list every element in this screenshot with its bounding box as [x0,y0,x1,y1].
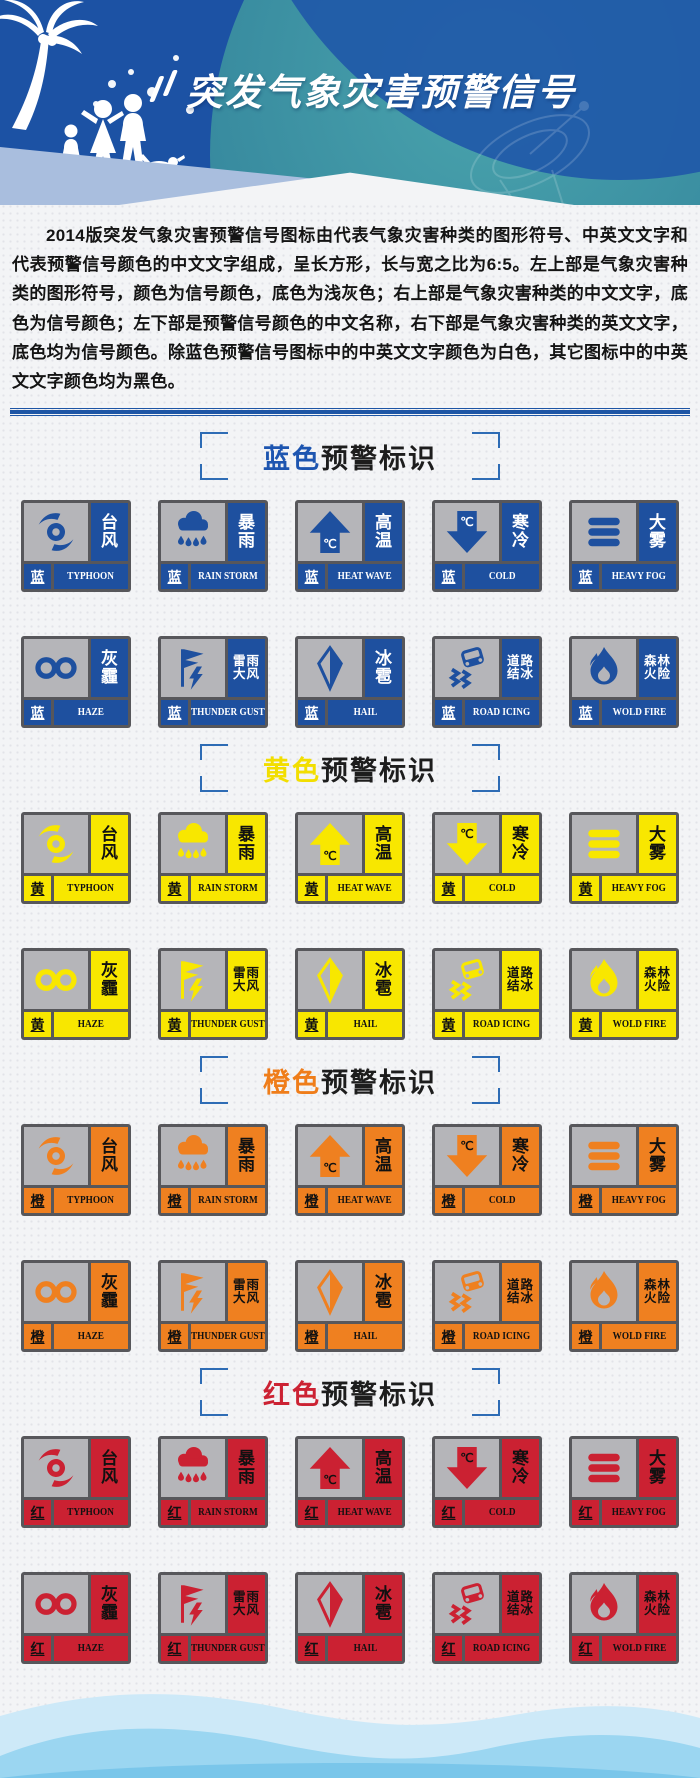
card-yellow-roadicing: 道路结冰 黄 ROAD ICING [432,948,542,1040]
heatwave-icon: ℃ [306,820,354,868]
zh-name: 寒冷 [502,503,539,561]
card-bottom-row: 蓝 RAIN STORM [161,564,265,589]
badge: 黄 [298,876,325,901]
en-name-cell: COLD [465,876,539,901]
heatwave-icon: ℃ [306,508,354,556]
card-top-row: 雷雨大风 [161,951,265,1009]
footer-waves [0,1682,700,1778]
heatwave-icon: ℃ [306,1132,354,1180]
zh-name-line: 大风 [233,668,260,682]
card-top-row: 道路结冰 [435,1263,539,1321]
zh-name: 大雾 [639,1127,676,1185]
badge: 蓝 [298,700,325,725]
icon-host [298,1263,362,1321]
zh-name-line: 结冰 [507,1292,534,1306]
zh-name: 台风 [91,1127,128,1185]
zh-name-line: 火险 [644,1604,671,1618]
section-title-color-word: 蓝色 [263,437,321,476]
card-top-row: 森林火险 [572,639,676,697]
card-orange-roadicing: 道路结冰 橙 ROAD ICING [432,1260,542,1352]
zh-name-line: 雾 [649,844,666,862]
warning-section-orange: 橙色预警标识 台风 橙 TYPHOON 暴雨 橙 RAIN STORM [0,1056,700,1352]
card-orange-rainstorm: 暴雨 橙 RAIN STORM [158,1124,268,1216]
icon-host [24,503,88,561]
section-title-rest: 预警标识 [321,1373,437,1412]
zh-name: 高温 [365,503,402,561]
zh-name-line: 灰 [101,962,118,980]
card-bottom-row: 黄 HAIL [298,1012,402,1037]
en-name: RAIN STORM [198,883,258,894]
section-title: 黄色预警标识 [200,744,500,792]
bracket-corner-icon [472,1368,500,1384]
bracket-corner-icon [472,464,500,480]
zh-name-line: 风 [101,844,118,862]
zh-name-line: 冷 [512,532,529,550]
zh-name: 雷雨大风 [228,1575,265,1633]
card-bottom-row: 橙 RAIN STORM [161,1188,265,1213]
en-name-cell: TYPHOON [54,876,128,901]
bracket-corner-icon [200,464,228,480]
zh-name-line: 冷 [512,1156,529,1174]
zh-name: 森林火险 [639,1575,676,1633]
zh-name-line: 台 [101,826,118,844]
icon-host: ℃ [298,1127,362,1185]
zh-name-line: 雨 [238,532,255,550]
badge: 蓝 [435,564,462,589]
card-bottom-row: 橙 HEAVY FOG [572,1188,676,1213]
card-top-row: 灰霾 [24,1575,128,1633]
wave-graphic [0,1682,700,1778]
icon-host [572,815,636,873]
heavyfog-icon [580,1132,628,1180]
card-red-haze: 灰霾 红 HAZE [21,1572,131,1664]
card-blue-wildfire: 森林火险 蓝 WOLD FIRE [569,636,679,728]
badge: 黄 [572,1012,599,1037]
icon-host [24,639,88,697]
card-bottom-row: 蓝 HAZE [24,700,128,725]
zh-name-line: 大风 [233,980,260,994]
rainstorm-icon [169,1132,217,1180]
icon-host [572,1263,636,1321]
section-title-color-word: 橙色 [263,1061,321,1100]
card-top-row: 冰雹 [298,951,402,1009]
zh-name: 大雾 [639,815,676,873]
card-bottom-row: 红 WOLD FIRE [572,1636,676,1661]
zh-name: 雷雨大风 [228,639,265,697]
icon-host: ℃ [435,1439,499,1497]
card-top-row: ℃ 寒冷 [435,503,539,561]
card-bottom-row: 蓝 HEAVY FOG [572,564,676,589]
card-top-row: 冰雹 [298,639,402,697]
zh-name-line: 风 [101,1156,118,1174]
card-orange-cold: ℃ 寒冷 橙 COLD [432,1124,542,1216]
roadicing-icon [443,1268,491,1316]
card-bottom-row: 红 COLD [435,1500,539,1525]
card-blue-hail: 冰雹 蓝 HAIL [295,636,405,728]
card-red-typhoon: 台风 红 TYPHOON [21,1436,131,1528]
zh-name-line: 暴 [238,1138,255,1156]
zh-name-line: 雾 [649,532,666,550]
card-red-thundergust: 雷雨大风 红 THUNDER GUST [158,1572,268,1664]
thundergust-icon [169,1268,217,1316]
en-name: HAIL [353,1019,377,1030]
card-top-row: 灰霾 [24,639,128,697]
en-name: TYPHOON [68,1195,115,1206]
card-yellow-hail: 冰雹 黄 HAIL [295,948,405,1040]
icon-host: ℃ [298,1439,362,1497]
en-name: WOLD FIRE [612,707,666,718]
zh-name-line: 雹 [375,668,392,686]
en-name: HEAT WAVE [338,883,392,894]
en-name-cell: HEAT WAVE [328,564,402,589]
zh-name-line: 寒 [512,514,529,532]
svg-text:℃: ℃ [323,537,336,551]
zh-name-line: 霾 [101,668,118,686]
card-bottom-row: 红 HAZE [24,1636,128,1661]
zh-name-line: 雹 [375,1604,392,1622]
en-name: THUNDER GUST [191,707,265,718]
zh-name-line: 霾 [101,1604,118,1622]
card-blue-thundergust: 雷雨大风 蓝 THUNDER GUST [158,636,268,728]
icon-host [572,951,636,1009]
zh-name-line: 暴 [238,1450,255,1468]
card-top-row: 大雾 [572,503,676,561]
card-bottom-row: 红 HEAVY FOG [572,1500,676,1525]
badge: 橙 [161,1324,188,1349]
card-red-heavyfog: 大雾 红 HEAVY FOG [569,1436,679,1528]
card-top-row: ℃ 高温 [298,503,402,561]
card-bottom-row: 黄 TYPHOON [24,876,128,901]
card-bottom-row: 黄 THUNDER GUST [161,1012,265,1037]
en-name-cell: ROAD ICING [465,1636,539,1661]
en-name: TYPHOON [68,571,115,582]
warning-section-blue: 蓝色预警标识 台风 蓝 TYPHOON 暴雨 蓝 RAIN STORM [0,432,700,728]
zh-name-line: 冰 [375,1586,392,1604]
typhoon-icon [32,820,80,868]
card-grid: 台风 红 TYPHOON 暴雨 红 RAIN STORM ℃ 高温 红 [0,1436,700,1664]
en-name-cell: THUNDER GUST [191,1324,265,1349]
card-top-row: 雷雨大风 [161,639,265,697]
card-top-row: 大雾 [572,1439,676,1497]
card-blue-roadicing: 道路结冰 蓝 ROAD ICING [432,636,542,728]
bracket-corner-icon [472,1056,500,1072]
zh-name-line: 结冰 [507,668,534,682]
bracket-corner-icon [472,776,500,792]
badge: 黄 [435,876,462,901]
card-bottom-row: 蓝 ROAD ICING [435,700,539,725]
card-yellow-cold: ℃ 寒冷 黄 COLD [432,812,542,904]
badge: 红 [161,1636,188,1661]
zh-name-line: 暴 [238,826,255,844]
card-yellow-rainstorm: 暴雨 黄 RAIN STORM [158,812,268,904]
badge: 橙 [435,1324,462,1349]
en-name: HAZE [78,707,104,718]
typhoon-icon [32,1444,80,1492]
card-bottom-row: 蓝 WOLD FIRE [572,700,676,725]
zh-name-line: 台 [101,1450,118,1468]
badge: 黄 [24,876,51,901]
card-orange-hail: 冰雹 橙 HAIL [295,1260,405,1352]
badge: 红 [572,1500,599,1525]
icon-host [161,951,225,1009]
en-name: HAIL [353,707,377,718]
zh-name-line: 温 [375,1468,392,1486]
card-top-row: 台风 [24,503,128,561]
card-bottom-row: 黄 COLD [435,876,539,901]
en-name-cell: ROAD ICING [465,700,539,725]
card-top-row: 台风 [24,1127,128,1185]
en-name-cell: THUNDER GUST [191,1012,265,1037]
rainstorm-icon [169,1444,217,1492]
en-name-cell: TYPHOON [54,564,128,589]
zh-name: 灰霾 [91,1575,128,1633]
zh-name-line: 高 [375,1138,392,1156]
en-name-cell: ROAD ICING [465,1324,539,1349]
palm-tree-icon [0,0,98,130]
en-name: WOLD FIRE [612,1019,666,1030]
card-bottom-row: 蓝 HAIL [298,700,402,725]
section-title-rest: 预警标识 [321,1061,437,1100]
card-blue-cold: ℃ 寒冷 蓝 COLD [432,500,542,592]
en-name: ROAD ICING [473,1331,530,1342]
en-name-cell: TYPHOON [54,1188,128,1213]
zh-name: 冰雹 [365,639,402,697]
en-name: HEAT WAVE [338,571,392,582]
badge: 蓝 [572,700,599,725]
en-name: WOLD FIRE [612,1331,666,1342]
zh-name-line: 火险 [644,1292,671,1306]
zh-name: 高温 [365,815,402,873]
card-top-row: 雷雨大风 [161,1263,265,1321]
card-top-row: ℃ 寒冷 [435,1439,539,1497]
en-name: HEAVY FOG [612,883,666,894]
badge: 橙 [572,1188,599,1213]
icon-host [435,639,499,697]
zh-name: 大雾 [639,503,676,561]
card-bottom-row: 橙 WOLD FIRE [572,1324,676,1349]
icon-host [298,951,362,1009]
zh-name-line: 灰 [101,650,118,668]
card-orange-wildfire: 森林火险 橙 WOLD FIRE [569,1260,679,1352]
card-top-row: 灰霾 [24,951,128,1009]
card-red-roadicing: 道路结冰 红 ROAD ICING [432,1572,542,1664]
icon-host: ℃ [298,815,362,873]
zh-name: 灰霾 [91,951,128,1009]
en-name: ROAD ICING [473,1019,530,1030]
zh-name-line: 大 [649,826,666,844]
zh-name-line: 温 [375,532,392,550]
zh-name: 暴雨 [228,1439,265,1497]
zh-name-line: 冰 [375,1274,392,1292]
heavyfog-icon [580,1444,628,1492]
en-name: COLD [489,1507,516,1518]
svg-text:℃: ℃ [460,1451,473,1465]
en-name-cell: THUNDER GUST [191,1636,265,1661]
card-red-cold: ℃ 寒冷 红 COLD [432,1436,542,1528]
zh-name: 大雾 [639,1439,676,1497]
card-top-row: ℃ 高温 [298,1439,402,1497]
cold-icon: ℃ [443,1132,491,1180]
en-name: THUNDER GUST [191,1331,265,1342]
zh-name: 冰雹 [365,1263,402,1321]
zh-name-line: 冷 [512,844,529,862]
badge: 蓝 [298,564,325,589]
en-name: WOLD FIRE [612,1643,666,1654]
page-title: 突发气象灾害预警信号 [186,62,576,116]
card-top-row: 暴雨 [161,503,265,561]
zh-name-line: 大风 [233,1292,260,1306]
card-top-row: 道路结冰 [435,951,539,1009]
badge: 橙 [572,1324,599,1349]
zh-name-line: 大 [649,1138,666,1156]
section-title-rest: 预警标识 [321,749,437,788]
card-bottom-row: 黄 RAIN STORM [161,876,265,901]
icon-host [298,1575,362,1633]
badge: 橙 [298,1324,325,1349]
section-title: 橙色预警标识 [200,1056,500,1104]
badge: 蓝 [161,700,188,725]
en-name-cell: ROAD ICING [465,1012,539,1037]
card-top-row: 道路结冰 [435,639,539,697]
hail-icon [306,644,354,692]
section-title-rest: 预警标识 [321,437,437,476]
en-name-cell: HAZE [54,1324,128,1349]
haze-icon [32,1580,80,1628]
badge: 蓝 [24,700,51,725]
bracket-corner-icon [200,776,228,792]
zh-name-line: 火险 [644,980,671,994]
thundergust-icon [169,956,217,1004]
zh-name-line: 风 [101,1468,118,1486]
zh-name-line: 冰 [375,962,392,980]
poster-page: 突发气象灾害预警信号 2014版突发气象灾害预警信号图标由代表气象灾害种类的图形… [0,0,700,1778]
icon-host [298,639,362,697]
card-bottom-row: 橙 HAIL [298,1324,402,1349]
card-orange-typhoon: 台风 橙 TYPHOON [21,1124,131,1216]
icon-host [24,951,88,1009]
haze-icon [32,956,80,1004]
icon-host [161,1575,225,1633]
card-top-row: 暴雨 [161,1127,265,1185]
en-name-cell: WOLD FIRE [602,1636,676,1661]
bracket-corner-icon [200,432,228,448]
card-yellow-heavyfog: 大雾 黄 HEAVY FOG [569,812,679,904]
en-name: HAIL [353,1643,377,1654]
zh-name-line: 雨 [238,1468,255,1486]
zh-name-line: 冷 [512,1468,529,1486]
card-bottom-row: 红 TYPHOON [24,1500,128,1525]
card-top-row: 雷雨大风 [161,1575,265,1633]
icon-host: ℃ [435,503,499,561]
zh-name-line: 温 [375,844,392,862]
zh-name: 寒冷 [502,1127,539,1185]
card-top-row: ℃ 寒冷 [435,815,539,873]
icon-host [161,815,225,873]
zh-name-line: 寒 [512,1138,529,1156]
en-name-cell: HAZE [54,1012,128,1037]
en-name: COLD [489,883,516,894]
en-name: HAZE [78,1019,104,1030]
card-bottom-row: 橙 ROAD ICING [435,1324,539,1349]
zh-name-line: 高 [375,1450,392,1468]
wildfire-icon [580,1580,628,1628]
en-name: RAIN STORM [198,571,258,582]
zh-name: 森林火险 [639,1263,676,1321]
icon-host [24,1439,88,1497]
zh-name: 森林火险 [639,951,676,1009]
card-top-row: ℃ 高温 [298,815,402,873]
en-name-cell: THUNDER GUST [191,700,265,725]
card-bottom-row: 红 RAIN STORM [161,1500,265,1525]
zh-name-line: 大 [649,514,666,532]
card-grid: 台风 蓝 TYPHOON 暴雨 蓝 RAIN STORM ℃ 高温 蓝 [0,500,700,728]
card-bottom-row: 蓝 THUNDER GUST [161,700,265,725]
hail-icon [306,1580,354,1628]
roadicing-icon [443,644,491,692]
icon-host [161,639,225,697]
wildfire-icon [580,956,628,1004]
svg-text:℃: ℃ [460,827,473,841]
card-yellow-haze: 灰霾 黄 HAZE [21,948,131,1040]
en-name-cell: HAIL [328,1636,402,1661]
card-blue-heatwave: ℃ 高温 蓝 HEAT WAVE [295,500,405,592]
svg-text:℃: ℃ [323,1161,336,1175]
svg-text:℃: ℃ [323,1473,336,1487]
zh-name-line: 雾 [649,1468,666,1486]
card-yellow-thundergust: 雷雨大风 黄 THUNDER GUST [158,948,268,1040]
zh-name: 灰霾 [91,1263,128,1321]
en-name: RAIN STORM [198,1507,258,1518]
en-name-cell: HEAT WAVE [328,1500,402,1525]
en-name: HAZE [78,1331,104,1342]
en-name-cell: COLD [465,1188,539,1213]
icon-host [161,503,225,561]
divider-rule [10,408,690,416]
bracket-corner-icon [200,1400,228,1416]
zh-name: 雷雨大风 [228,951,265,1009]
zh-name-line: 雹 [375,980,392,998]
icon-host [435,1575,499,1633]
en-name-cell: WOLD FIRE [602,1012,676,1037]
icon-host: ℃ [435,1127,499,1185]
card-orange-heavyfog: 大雾 橙 HEAVY FOG [569,1124,679,1216]
en-name-cell: HAZE [54,700,128,725]
badge: 红 [572,1636,599,1661]
bracket-corner-icon [472,1400,500,1416]
card-bottom-row: 黄 HAZE [24,1012,128,1037]
zh-name: 寒冷 [502,815,539,873]
zh-name-line: 雨 [238,844,255,862]
badge: 红 [435,1636,462,1661]
zh-name: 暴雨 [228,815,265,873]
heavyfog-icon [580,508,628,556]
bracket-corner-icon [472,744,500,760]
icon-host: ℃ [298,503,362,561]
en-name: HEAVY FOG [612,1195,666,1206]
en-name: HAIL [353,1331,377,1342]
zh-name-line: 火险 [644,668,671,682]
card-bottom-row: 黄 WOLD FIRE [572,1012,676,1037]
badge: 红 [298,1636,325,1661]
zh-name-line: 灰 [101,1274,118,1292]
en-name: RAIN STORM [198,1195,258,1206]
heatwave-icon: ℃ [306,1444,354,1492]
card-yellow-typhoon: 台风 黄 TYPHOON [21,812,131,904]
warning-section-yellow: 黄色预警标识 台风 黄 TYPHOON 暴雨 黄 RAIN STORM [0,744,700,1040]
card-grid: 台风 橙 TYPHOON 暴雨 橙 RAIN STORM ℃ 高温 橙 [0,1124,700,1352]
warning-section-red: 红色预警标识 台风 红 TYPHOON 暴雨 红 RAIN STORM [0,1368,700,1664]
zh-name-line: 高 [375,826,392,844]
